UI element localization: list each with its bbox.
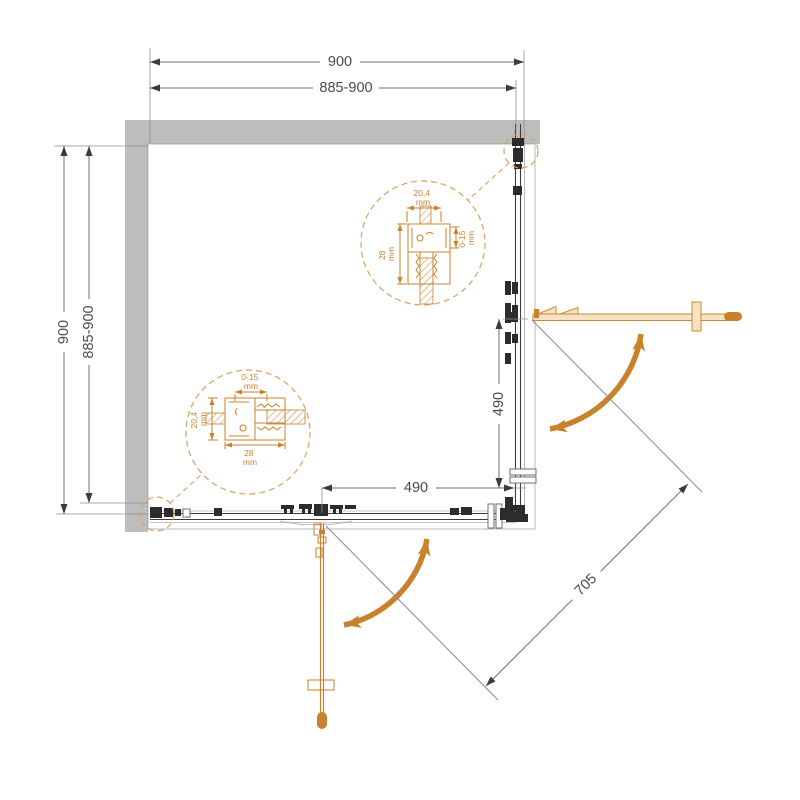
detail-leader-bottom-left	[170, 474, 202, 503]
bottom-panel-left-bracket	[150, 507, 222, 518]
dim-door-right-label: 490	[491, 392, 507, 416]
bottom-door-end-cap	[317, 712, 327, 729]
detail-depth-label-bl: 28 mm	[243, 448, 257, 467]
right-door-handle	[692, 302, 701, 331]
detail-adjust-label: 0-15 mm	[457, 228, 476, 247]
detail-leader-top-right	[468, 163, 509, 200]
dim-top-total: 900	[320, 53, 360, 71]
right-door-leaf	[533, 314, 734, 321]
right-door-swing-arrow	[550, 334, 641, 429]
right-door-hinge-1	[538, 307, 556, 315]
dim-side-total-label: 900	[56, 320, 72, 344]
right-door-open	[533, 302, 742, 331]
bottom-panel-hinge-hardware	[280, 504, 356, 525]
detail-width-label: 20,4 mm	[414, 188, 433, 207]
profile-section-top-right	[408, 206, 450, 304]
detail-depth-label: 28 mm	[377, 247, 396, 261]
right-door-hinge-2	[560, 308, 578, 315]
right-door-end-cap	[724, 312, 742, 321]
bottom-fixed-panel	[150, 504, 528, 528]
dimensions: 900 885-900 900 885-900 490	[54, 48, 702, 700]
dim-side-range: 885-900	[80, 299, 98, 365]
walls	[125, 120, 540, 532]
detail-width-label-bl: 20,4 mm	[189, 410, 208, 429]
bottom-door-swing-arrow	[344, 539, 427, 625]
left-wall	[125, 120, 148, 532]
dim-door-right: 490	[490, 384, 508, 424]
shower-enclosure-plan-drawing: 900 885-900 900 885-900 490	[0, 0, 800, 800]
profile-section-bottom-left	[206, 398, 305, 440]
dim-top-range-label: 885-900	[319, 80, 372, 96]
dim-top-total-label: 900	[328, 54, 352, 70]
bottom-door	[308, 523, 334, 729]
technical-drawing-canvas: 900 885-900 900 885-900 490	[0, 0, 800, 800]
dim-top-range: 885-900	[313, 79, 379, 97]
right-fixed-panel	[500, 124, 536, 520]
detail-adjust-label-bl: 0-15 mm	[241, 372, 260, 391]
right-door-pivot	[534, 309, 539, 318]
top-wall	[125, 120, 540, 144]
dim-side-total: 900	[55, 312, 73, 352]
right-panel-wall-bracket	[510, 469, 536, 483]
dim-side-range-label: 885-900	[81, 305, 97, 358]
dim-door-bottom: 490	[396, 479, 436, 497]
detail-callout-top-right: 20,4 mm 28 mm 0-15 mm	[361, 134, 538, 305]
dim-door-bottom-label: 490	[404, 480, 428, 496]
tray-outline	[148, 144, 535, 529]
dim-diagonal: 705	[565, 564, 606, 605]
